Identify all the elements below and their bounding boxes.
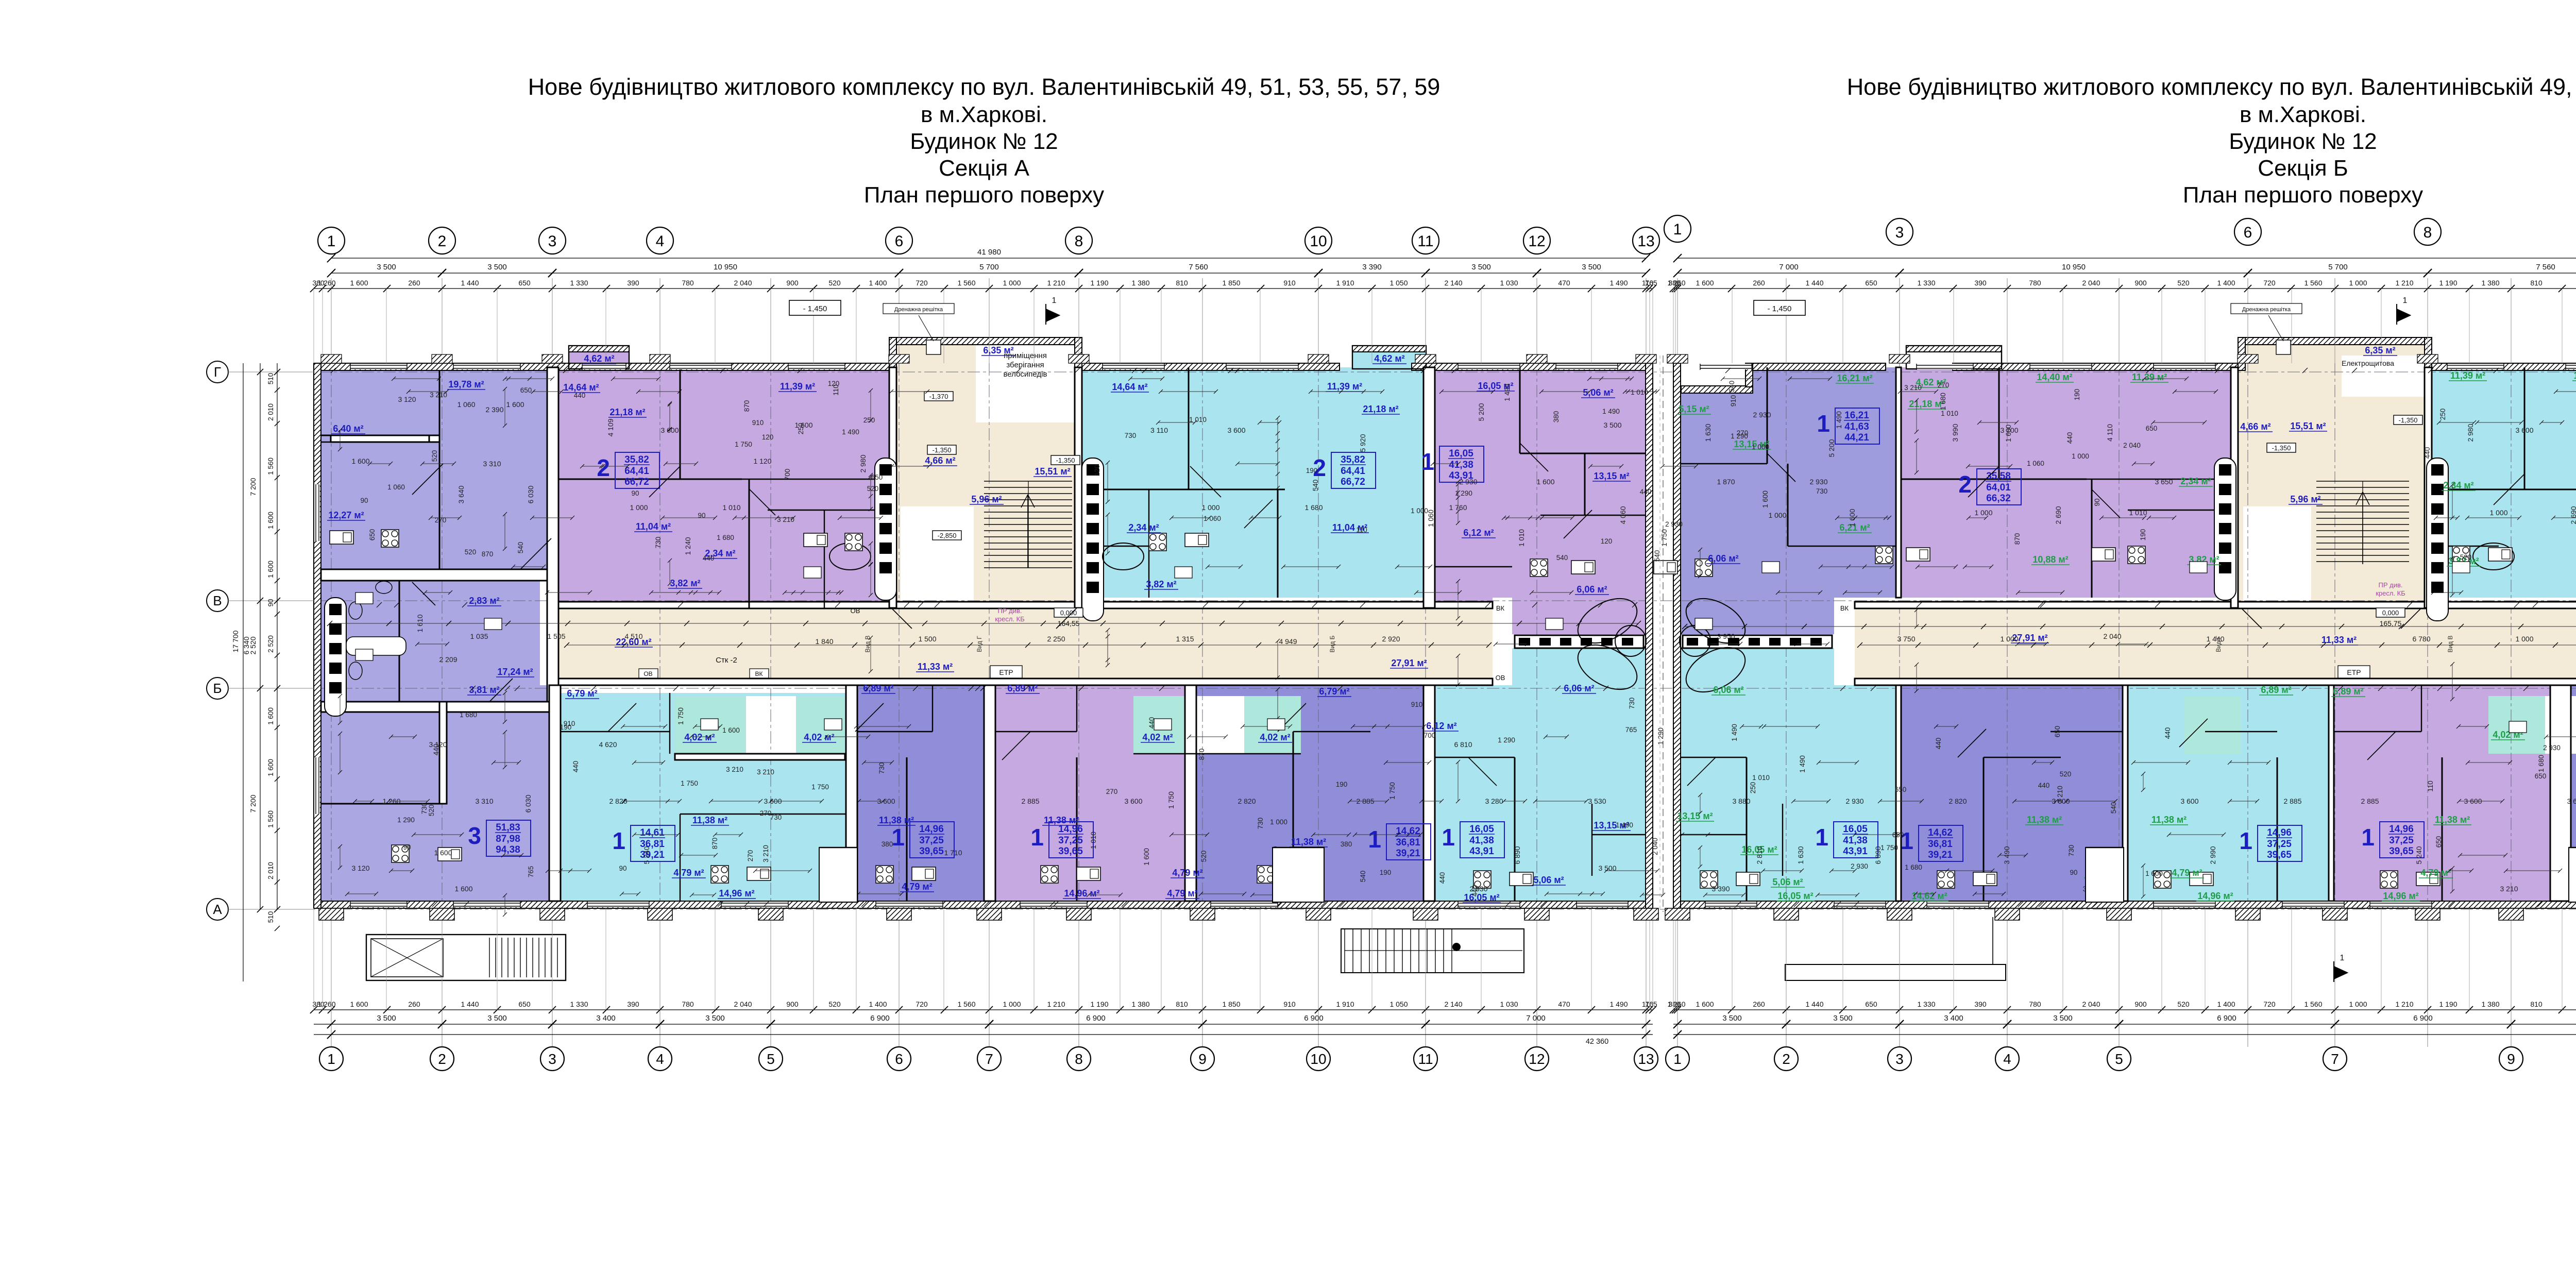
svg-text:План першого поверху: План першого поверху	[864, 182, 1104, 208]
svg-text:1 600: 1 600	[267, 561, 275, 578]
svg-text:1 000: 1 000	[630, 503, 648, 512]
svg-text:1 680: 1 680	[1304, 503, 1323, 512]
svg-text:1 010: 1 010	[1090, 832, 1097, 849]
svg-text:1 505: 1 505	[547, 632, 565, 640]
svg-text:2 885: 2 885	[1021, 797, 1039, 805]
svg-text:Вид В: Вид В	[864, 635, 871, 652]
svg-text:2 980: 2 980	[859, 454, 867, 472]
svg-text:440: 440	[2164, 727, 2172, 739]
svg-text:6 900: 6 900	[1304, 1014, 1324, 1023]
svg-text:1 050: 1 050	[1389, 1000, 1408, 1008]
svg-text:650: 650	[1865, 1000, 1877, 1008]
svg-text:1 490: 1 490	[1799, 755, 1806, 773]
svg-text:1 440: 1 440	[461, 1000, 479, 1008]
svg-text:1: 1	[2361, 824, 2375, 851]
svg-text:390: 390	[1974, 279, 1987, 287]
svg-text:11: 11	[1417, 233, 1433, 250]
svg-text:2: 2	[597, 454, 610, 481]
svg-text:1 010: 1 010	[722, 503, 740, 512]
svg-text:-1,350: -1,350	[2399, 416, 2418, 424]
svg-text:90: 90	[619, 865, 626, 872]
svg-text:64,01: 64,01	[1986, 482, 2011, 493]
svg-text:15,51 м²: 15,51 м²	[1035, 466, 1070, 477]
svg-text:1 010: 1 010	[1518, 529, 1526, 547]
svg-text:90: 90	[2093, 498, 2101, 506]
svg-text:3 210: 3 210	[2500, 885, 2518, 893]
svg-text:2,83 м²: 2,83 м²	[469, 596, 499, 606]
svg-text:910: 910	[752, 419, 764, 427]
svg-text:6 810: 6 810	[1454, 740, 1472, 749]
svg-text:3 500: 3 500	[487, 1014, 507, 1023]
svg-text:2: 2	[438, 1051, 446, 1067]
svg-text:2 140: 2 140	[1444, 279, 1462, 287]
svg-text:720: 720	[2263, 279, 2276, 287]
svg-text:1 680: 1 680	[460, 711, 477, 719]
svg-text:1 240: 1 240	[684, 537, 692, 555]
svg-text:3 500: 3 500	[377, 1014, 396, 1023]
svg-text:4,79 м²: 4,79 м²	[673, 868, 704, 878]
svg-text:1 210: 1 210	[2395, 279, 2413, 287]
svg-text:3 500: 3 500	[1582, 263, 1601, 272]
svg-text:11,38 м²: 11,38 м²	[2435, 815, 2470, 825]
svg-text:5,06 м²: 5,06 м²	[1583, 387, 1613, 398]
svg-text:14,96 м²: 14,96 м²	[719, 888, 754, 899]
svg-text:87,98: 87,98	[496, 834, 520, 844]
svg-text:1 490: 1 490	[1731, 724, 1738, 741]
svg-text:1 750: 1 750	[1880, 844, 1898, 852]
svg-text:1 600: 1 600	[1696, 1000, 1714, 1008]
svg-text:2 040: 2 040	[734, 1000, 752, 1008]
svg-text:План першого поверху: План першого поверху	[2183, 182, 2423, 208]
svg-text:4,79 м²: 4,79 м²	[2420, 868, 2451, 878]
svg-text:2 690: 2 690	[2569, 506, 2576, 524]
svg-text:440: 440	[1640, 488, 1652, 496]
svg-text:2 010: 2 010	[267, 862, 275, 879]
svg-text:1 600: 1 600	[350, 279, 368, 287]
svg-text:21,18 м²: 21,18 м²	[1363, 404, 1398, 414]
svg-text:3 500: 3 500	[377, 263, 396, 272]
svg-text:37,25: 37,25	[919, 835, 944, 846]
svg-text:1 035: 1 035	[470, 632, 488, 640]
svg-text:9: 9	[1198, 1051, 1207, 1067]
svg-text:3,82 м²: 3,82 м²	[1146, 579, 1176, 589]
svg-text:Будинок № 12: Будинок № 12	[2229, 129, 2377, 154]
svg-text:3 500: 3 500	[1722, 1014, 1742, 1023]
svg-text:3 530: 3 530	[1588, 797, 1606, 805]
svg-text:- 1,450: - 1,450	[803, 304, 827, 313]
svg-text:540: 540	[1312, 480, 1319, 492]
svg-text:1 560: 1 560	[2304, 279, 2322, 287]
svg-text:1: 1	[1673, 221, 1682, 238]
svg-text:520: 520	[828, 1000, 841, 1008]
svg-text:10 950: 10 950	[2062, 263, 2086, 272]
svg-text:1 850: 1 850	[1222, 279, 1240, 287]
svg-text:Нове будівництво житлового ком: Нове будівництво житлового комплексу по …	[1847, 74, 2576, 100]
svg-text:5,96 м²: 5,96 м²	[971, 494, 1002, 504]
svg-text:21,18 м²: 21,18 м²	[609, 407, 645, 417]
svg-text:440: 440	[432, 744, 440, 756]
svg-text:5 240: 5 240	[642, 846, 651, 864]
svg-text:900: 900	[786, 279, 799, 287]
svg-text:1 060: 1 060	[2027, 460, 2044, 467]
svg-text:11,39 м²: 11,39 м²	[1327, 381, 1362, 392]
svg-text:3 750: 3 750	[1897, 635, 1915, 643]
svg-text:13: 13	[1638, 1051, 1654, 1067]
svg-text:900: 900	[2134, 279, 2147, 287]
svg-text:1 000: 1 000	[1974, 509, 1992, 517]
svg-text:6: 6	[895, 1051, 903, 1067]
svg-text:1 840: 1 840	[815, 637, 833, 646]
svg-text:11: 11	[1418, 1051, 1433, 1067]
svg-text:1: 1	[1673, 1051, 1682, 1067]
svg-text:440: 440	[2424, 447, 2431, 459]
svg-text:720: 720	[916, 1000, 928, 1008]
svg-text:2 930: 2 930	[1753, 411, 1771, 419]
svg-text:120: 120	[762, 433, 774, 441]
svg-text:7 200: 7 200	[249, 794, 257, 812]
svg-text:1 630: 1 630	[1797, 846, 1805, 864]
svg-text:810: 810	[1176, 1000, 1188, 1008]
svg-text:3 500: 3 500	[487, 263, 507, 272]
svg-text:1 380: 1 380	[2481, 1000, 2499, 1008]
svg-text:3 120: 3 120	[351, 864, 369, 872]
svg-text:1 560: 1 560	[267, 457, 275, 475]
svg-text:4 510: 4 510	[624, 632, 642, 640]
svg-text:6 030: 6 030	[524, 794, 532, 812]
svg-text:36,81: 36,81	[1396, 837, 1420, 848]
svg-text:1: 1	[2239, 827, 2252, 854]
svg-text:11,39 м²: 11,39 м²	[2132, 372, 2167, 382]
svg-text:1 600: 1 600	[351, 457, 369, 465]
svg-text:8: 8	[1075, 1051, 1083, 1067]
svg-text:6: 6	[2244, 224, 2252, 241]
svg-text:39,65: 39,65	[919, 846, 944, 857]
svg-text:1 210: 1 210	[2395, 1000, 2413, 1008]
svg-text:4: 4	[656, 233, 665, 250]
svg-text:1 490: 1 490	[842, 428, 859, 436]
svg-text:6 780: 6 780	[2412, 635, 2430, 643]
svg-text:43,91: 43,91	[1843, 846, 1868, 857]
svg-text:6,06 м²: 6,06 м²	[1577, 584, 1607, 595]
svg-text:1 750: 1 750	[1660, 529, 1668, 547]
svg-text:780: 780	[682, 279, 694, 287]
svg-text:3 500: 3 500	[1603, 421, 1621, 429]
svg-text:1 380: 1 380	[1131, 279, 1149, 287]
svg-text:3: 3	[1895, 224, 1904, 241]
svg-text:2,34 м²: 2,34 м²	[2180, 476, 2211, 486]
svg-text:1 680: 1 680	[2537, 755, 2545, 772]
svg-text:13,15 м²: 13,15 м²	[1594, 471, 1629, 481]
svg-text:730: 730	[1628, 698, 1636, 709]
svg-text:250: 250	[1749, 782, 1757, 794]
svg-text:11,33 м²: 11,33 м²	[2321, 635, 2357, 645]
svg-text:1 630: 1 630	[1704, 423, 1712, 442]
svg-text:270: 270	[747, 850, 754, 862]
svg-text:1 490: 1 490	[1616, 821, 1633, 829]
svg-text:540: 540	[1728, 381, 1736, 393]
svg-text:4,66 м²: 4,66 м²	[925, 455, 955, 466]
svg-text:270: 270	[1938, 381, 1950, 389]
svg-text:810: 810	[1176, 279, 1188, 287]
svg-text:Секція А: Секція А	[939, 156, 1030, 181]
svg-text:1 850: 1 850	[1222, 1000, 1240, 1008]
svg-text:440: 440	[1935, 738, 1942, 750]
svg-text:1 000: 1 000	[2349, 279, 2367, 287]
svg-text:4,62 м²: 4,62 м²	[1374, 353, 1404, 364]
svg-text:90: 90	[631, 489, 639, 497]
svg-text:520: 520	[828, 279, 841, 287]
svg-text:64,41: 64,41	[624, 466, 649, 477]
svg-text:7 560: 7 560	[1189, 263, 1208, 272]
svg-text:520: 520	[2460, 553, 2472, 561]
svg-text:41 980: 41 980	[977, 248, 1001, 257]
svg-text:870: 870	[1198, 749, 1206, 760]
svg-text:720: 720	[2263, 1000, 2276, 1008]
svg-text:Нове будівництво житлового ком: Нове будівництво житлового комплексу по …	[528, 74, 1440, 100]
svg-text:в м.Харкові.: в м.Харкові.	[921, 102, 1047, 127]
svg-text:зберігання: зберігання	[1006, 361, 1044, 369]
svg-text:11,38 м²: 11,38 м²	[2027, 815, 2062, 825]
svg-text:4 060: 4 060	[1619, 506, 1627, 524]
svg-text:6 340: 6 340	[242, 636, 250, 654]
svg-text:1 490: 1 490	[1503, 384, 1511, 401]
svg-text:730: 730	[654, 537, 662, 549]
svg-text:3 500: 3 500	[1598, 864, 1616, 872]
svg-text:1 600: 1 600	[350, 1000, 368, 1008]
svg-text:1 000: 1 000	[1003, 1000, 1021, 1008]
svg-text:2 390: 2 390	[485, 405, 503, 414]
svg-text:16,05: 16,05	[1449, 448, 1473, 459]
svg-text:1 490: 1 490	[1602, 408, 1620, 415]
svg-text:6,06 м²: 6,06 м²	[1713, 685, 1743, 695]
svg-text:1: 1	[1421, 448, 1434, 475]
svg-text:540: 540	[1556, 554, 1568, 562]
svg-text:390: 390	[627, 279, 639, 287]
svg-text:440: 440	[1471, 885, 1479, 897]
svg-text:540: 540	[517, 542, 524, 554]
svg-text:14,96: 14,96	[1058, 824, 1083, 835]
svg-text:1 190: 1 190	[1090, 1000, 1108, 1008]
svg-text:380: 380	[1341, 840, 1352, 848]
svg-text:5,96 м²: 5,96 м²	[2290, 494, 2320, 504]
svg-text:6,89 м²: 6,89 м²	[2333, 686, 2363, 697]
svg-text:2 930: 2 930	[2543, 744, 2561, 752]
svg-text:6,89 м²: 6,89 м²	[2261, 685, 2291, 695]
svg-text:1 910: 1 910	[1336, 279, 1354, 287]
svg-text:1: 1	[612, 827, 625, 854]
svg-text:11,38 м²: 11,38 м²	[2151, 815, 2187, 825]
svg-text:765: 765	[1645, 1000, 1657, 1008]
svg-text:16,05 м²: 16,05 м²	[1777, 891, 1813, 901]
svg-text:270: 270	[1737, 429, 1749, 437]
svg-text:1 600: 1 600	[434, 849, 452, 857]
svg-text:7 000: 7 000	[1526, 1014, 1546, 1023]
svg-text:3 400: 3 400	[1944, 1014, 1963, 1023]
svg-text:14,96 м²: 14,96 м²	[2383, 891, 2418, 901]
svg-text:2 250: 2 250	[1047, 635, 1065, 643]
svg-text:440: 440	[1438, 872, 1446, 884]
svg-text:440: 440	[703, 554, 715, 562]
svg-text:3 640: 3 640	[457, 485, 465, 503]
svg-text:66,72: 66,72	[1341, 477, 1365, 487]
svg-text:2: 2	[1958, 471, 1972, 498]
svg-text:ЕТР: ЕТР	[999, 668, 1013, 676]
svg-text:2 930: 2 930	[1845, 797, 1863, 805]
svg-text:910: 910	[1411, 701, 1423, 708]
svg-text:650: 650	[2054, 726, 2061, 738]
svg-text:1 600: 1 600	[506, 400, 524, 409]
svg-text:3 310: 3 310	[483, 460, 501, 468]
svg-text:17,24 м²: 17,24 м²	[497, 667, 533, 677]
svg-text:в м.Харкові.: в м.Харкові.	[2240, 102, 2366, 127]
svg-text:Вид В: Вид В	[2447, 635, 2454, 652]
svg-text:Вид Г: Вид Г	[976, 636, 983, 652]
svg-text:520: 520	[2177, 279, 2190, 287]
svg-text:5,06 м²: 5,06 м²	[1533, 875, 1564, 885]
svg-text:260: 260	[1753, 279, 1765, 287]
svg-text:2 930: 2 930	[1459, 478, 1477, 486]
svg-text:1 315: 1 315	[1176, 635, 1194, 643]
svg-text:4,02 м²: 4,02 м²	[684, 732, 715, 742]
svg-text:3 500: 3 500	[1471, 263, 1491, 272]
svg-text:66,72: 66,72	[624, 477, 649, 487]
svg-text:4,79 м²: 4,79 м²	[1172, 868, 1202, 878]
svg-text:1 440: 1 440	[1805, 1000, 1823, 1008]
svg-text:Б: Б	[213, 681, 222, 696]
svg-text:1 260: 1 260	[1667, 1000, 1685, 1008]
svg-text:440: 440	[574, 392, 586, 399]
svg-text:8: 8	[1075, 233, 1083, 250]
svg-text:1 060: 1 060	[387, 483, 405, 491]
svg-text:14,62: 14,62	[1928, 827, 1953, 838]
svg-text:7: 7	[2331, 1051, 2339, 1067]
svg-text:2,34 м²: 2,34 м²	[1128, 522, 1159, 533]
svg-text:4 110: 4 110	[2106, 424, 2114, 442]
svg-text:1 290: 1 290	[1498, 736, 1515, 744]
svg-text:1 490: 1 490	[1609, 1000, 1628, 1008]
svg-text:90: 90	[698, 512, 705, 519]
svg-text:1 680: 1 680	[1939, 393, 1947, 410]
svg-text:1 050: 1 050	[1389, 279, 1408, 287]
svg-text:910: 910	[1283, 279, 1296, 287]
svg-text:2 010: 2 010	[267, 403, 275, 421]
svg-text:14,96 м²: 14,96 м²	[1064, 888, 1099, 899]
svg-text:39,21: 39,21	[1928, 850, 1953, 860]
svg-text:520: 520	[2060, 770, 2072, 778]
svg-text:10: 10	[1310, 1051, 1326, 1067]
svg-text:870: 870	[711, 838, 719, 850]
svg-text:250: 250	[797, 423, 805, 435]
svg-text:650: 650	[1865, 279, 1877, 287]
svg-text:380: 380	[882, 840, 893, 848]
svg-text:1 490: 1 490	[1835, 411, 1843, 429]
svg-text:-1,350: -1,350	[2272, 444, 2291, 452]
svg-text:1 440: 1 440	[1805, 279, 1823, 287]
svg-text:730: 730	[2067, 845, 2075, 857]
svg-text:1 060: 1 060	[1204, 515, 1221, 522]
svg-text:5 200: 5 200	[1477, 403, 1485, 421]
svg-text:35,58: 35,58	[1986, 471, 2011, 482]
svg-text:1 750: 1 750	[811, 783, 829, 791]
svg-text:2 040: 2 040	[734, 279, 752, 287]
svg-text:3 600: 3 600	[2515, 426, 2533, 434]
svg-text:2 820: 2 820	[1948, 797, 1967, 805]
svg-text:730: 730	[420, 803, 428, 815]
svg-text:1 260: 1 260	[1667, 279, 1685, 287]
svg-text:1 600: 1 600	[267, 512, 275, 529]
svg-text:1 010: 1 010	[1189, 416, 1207, 423]
svg-text:ОВ: ОВ	[643, 670, 652, 677]
svg-text:4,02 м²: 4,02 м²	[1260, 732, 1290, 742]
svg-text:14,96: 14,96	[2389, 824, 2414, 835]
svg-text:910: 910	[1283, 1000, 1296, 1008]
svg-text:3 600: 3 600	[1124, 797, 1142, 805]
svg-text:90: 90	[267, 599, 275, 606]
svg-text:540: 540	[2110, 802, 2117, 814]
svg-text:1 290: 1 290	[1657, 727, 1665, 745]
svg-text:6: 6	[895, 233, 904, 250]
svg-text:110: 110	[1356, 526, 1367, 534]
svg-text:520: 520	[428, 805, 435, 817]
svg-text:2 930: 2 930	[1809, 478, 1827, 486]
svg-text:765: 765	[1625, 726, 1637, 734]
svg-text:1 750: 1 750	[735, 440, 752, 448]
svg-text:910: 910	[564, 720, 575, 727]
svg-text:1 330: 1 330	[1917, 279, 1935, 287]
svg-text:1 290: 1 290	[397, 816, 415, 824]
svg-text:730: 730	[770, 814, 782, 821]
svg-text:1 600: 1 600	[2005, 425, 2012, 442]
svg-text:1: 1	[1052, 296, 1057, 305]
svg-text:1 600: 1 600	[454, 885, 472, 893]
svg-text:4: 4	[2003, 1051, 2011, 1067]
svg-text:16,05: 16,05	[1843, 824, 1868, 835]
svg-text:3 210: 3 210	[2056, 786, 2064, 803]
svg-text:120: 120	[828, 380, 840, 387]
svg-text:1 560: 1 560	[2304, 1000, 2322, 1008]
svg-text:39,65: 39,65	[1058, 846, 1083, 857]
svg-text:120: 120	[1093, 465, 1101, 477]
svg-text:6,35 м²: 6,35 м²	[2365, 345, 2395, 355]
svg-text:380: 380	[1552, 411, 1560, 423]
svg-text:650: 650	[518, 1000, 531, 1008]
svg-text:14,64 м²: 14,64 м²	[2573, 370, 2576, 381]
svg-text:14,96: 14,96	[919, 824, 944, 835]
svg-text:1 400: 1 400	[2217, 1000, 2235, 1008]
svg-text:1 000: 1 000	[1768, 511, 1786, 519]
svg-text:11,39 м²: 11,39 м²	[2450, 370, 2485, 381]
svg-text:650: 650	[1895, 786, 1907, 793]
svg-text:3: 3	[468, 822, 481, 849]
svg-text:1 010: 1 010	[1631, 388, 1648, 396]
svg-text:14,40 м²: 14,40 м²	[2037, 372, 2072, 382]
svg-text:6,12 м²: 6,12 м²	[1426, 721, 1456, 731]
svg-text:2 990: 2 990	[2209, 846, 2217, 864]
svg-text:1 000: 1 000	[1411, 507, 1428, 515]
svg-text:Дренажна решітка: Дренажна решітка	[2242, 307, 2291, 313]
svg-text:-1,350: -1,350	[933, 446, 952, 454]
svg-text:Вид Г: Вид Г	[2215, 636, 2222, 652]
svg-text:35,82: 35,82	[624, 454, 649, 465]
svg-text:190: 190	[2139, 529, 2147, 541]
svg-text:520: 520	[867, 485, 879, 493]
svg-text:780: 780	[2029, 279, 2041, 287]
svg-text:470: 470	[1558, 1000, 1570, 1008]
svg-text:14,64 м²: 14,64 м²	[1112, 382, 1147, 392]
svg-text:3 500: 3 500	[1833, 1014, 1853, 1023]
svg-text:1 330: 1 330	[570, 279, 588, 287]
svg-text:42 360: 42 360	[1586, 1038, 1608, 1046]
